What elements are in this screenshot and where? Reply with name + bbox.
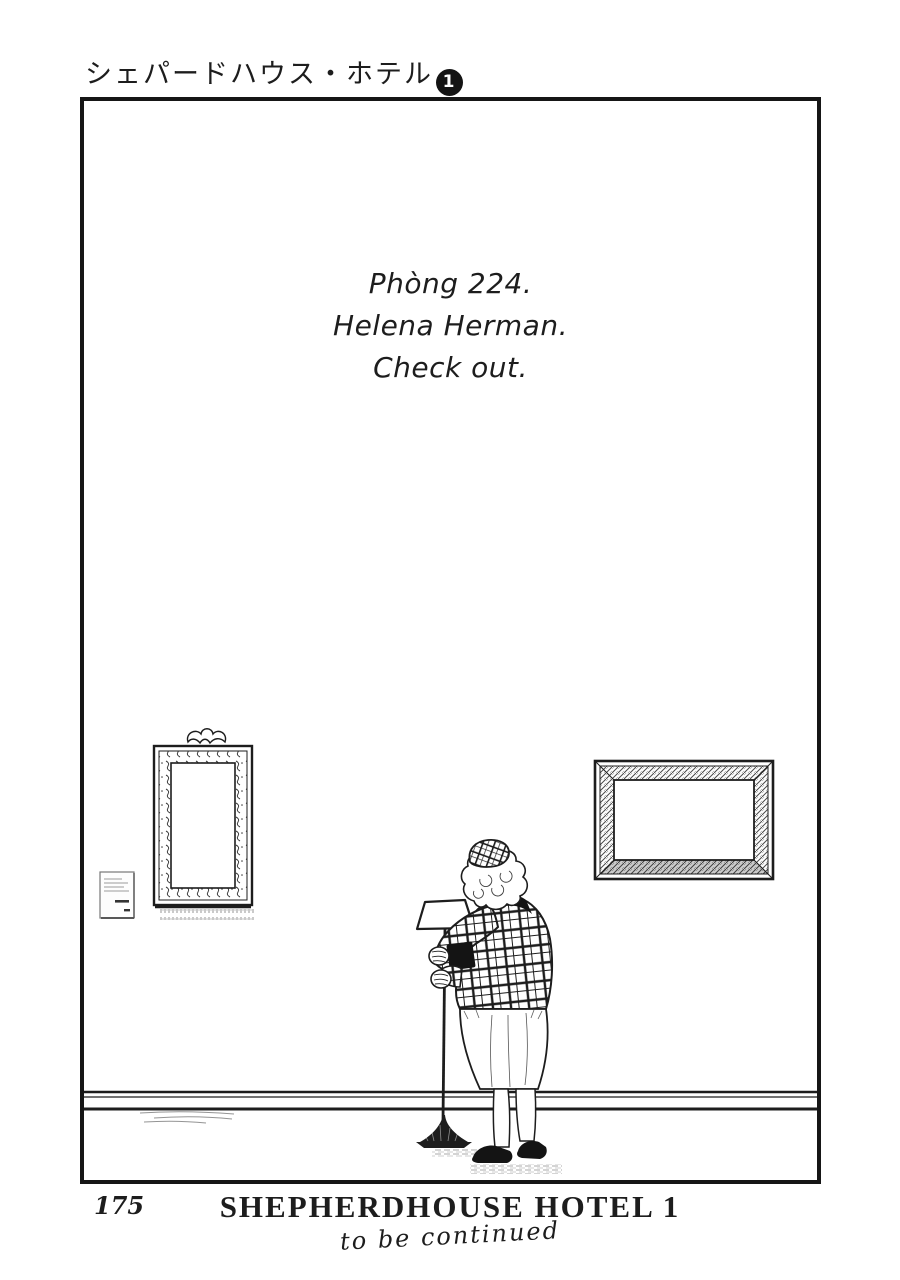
beveled-empty-frame [595,761,773,879]
volume-number-badge: 1 [436,69,463,96]
series-title-text: シェパードハウス・ホテル [85,59,433,90]
baseboard [84,1092,817,1109]
series-title: シェパードハウス・ホテル1 [85,52,463,96]
floor-marks [140,1112,234,1123]
woman-figure [429,840,562,1174]
wall-placard [100,872,134,918]
ornate-empty-frame [154,729,254,920]
manga-panel: Phòng 224. Helena Herman. Check out. [80,97,821,1184]
manga-page: シェパードハウス・ホテル1 Phòng 224. Helena Herman. … [0,0,900,1280]
gallery-illustration [84,101,817,1180]
